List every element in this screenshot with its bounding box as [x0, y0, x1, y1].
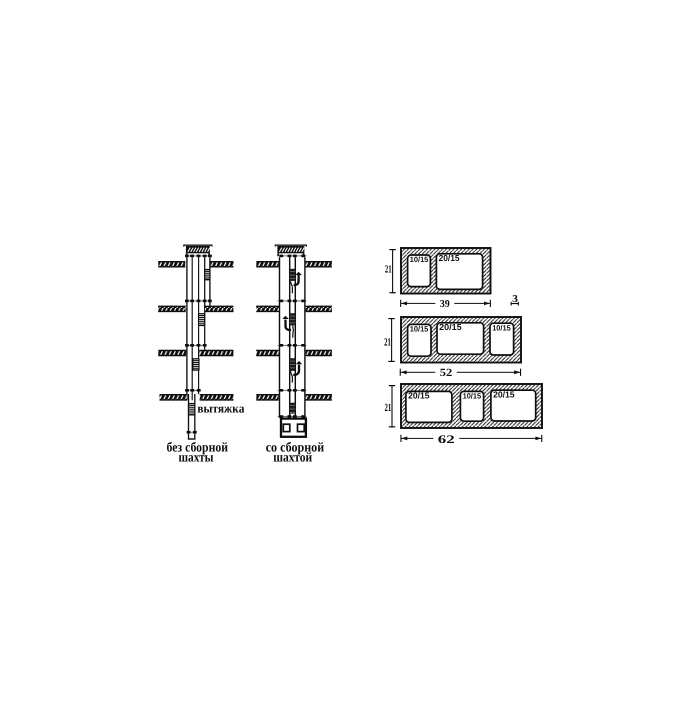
svg-text:21: 21: [385, 263, 392, 275]
svg-text:10/15: 10/15: [410, 255, 429, 264]
svg-text:шахтой: шахтой: [273, 450, 312, 465]
svg-text:10/15: 10/15: [410, 325, 429, 334]
svg-text:вытяжка: вытяжка: [197, 402, 245, 416]
svg-text:10/15: 10/15: [463, 392, 482, 401]
svg-text:39: 39: [440, 299, 450, 310]
svg-text:21: 21: [385, 402, 392, 414]
svg-text:62: 62: [438, 434, 455, 446]
svg-text:10/15: 10/15: [492, 323, 511, 332]
svg-text:21: 21: [384, 337, 391, 349]
svg-text:20/15: 20/15: [439, 322, 462, 332]
svg-text:52: 52: [440, 367, 453, 379]
svg-text:20/15: 20/15: [439, 253, 460, 263]
svg-text:20/15: 20/15: [408, 391, 430, 401]
svg-text:20/15: 20/15: [493, 389, 515, 399]
svg-text:шахты: шахты: [179, 450, 214, 465]
